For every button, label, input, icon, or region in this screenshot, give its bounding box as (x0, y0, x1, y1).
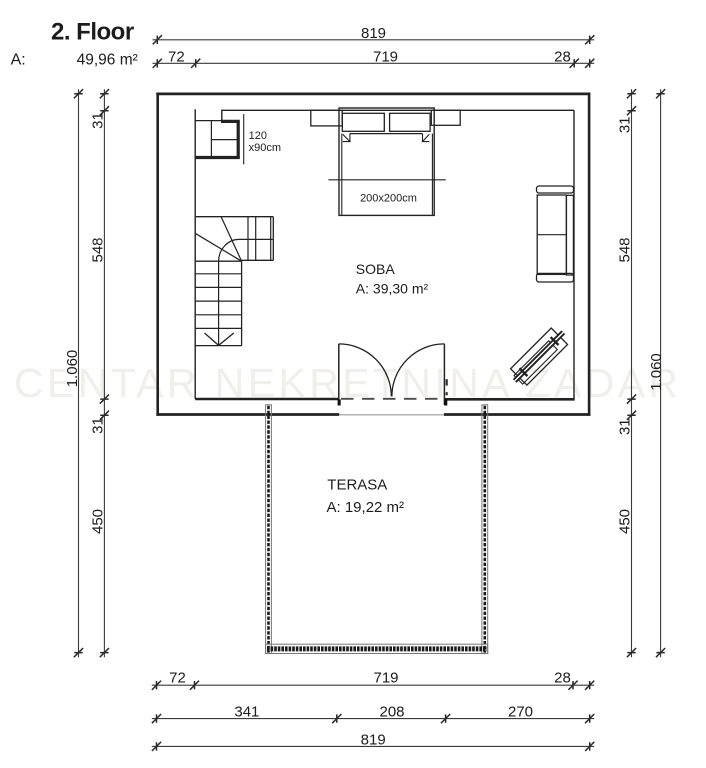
svg-text:200x200cm: 200x200cm (360, 192, 417, 204)
svg-text:120: 120 (249, 130, 267, 142)
svg-text:548: 548 (617, 237, 634, 262)
svg-text:719: 719 (373, 669, 398, 686)
svg-text:548: 548 (90, 237, 107, 262)
svg-text:1.060: 1.060 (648, 353, 665, 391)
svg-text:819: 819 (361, 732, 386, 749)
svg-text:450: 450 (90, 509, 107, 534)
svg-text:341: 341 (234, 703, 259, 720)
svg-text:A:: A: (11, 52, 26, 69)
svg-text:49,96 m²: 49,96 m² (77, 52, 138, 69)
svg-text:719: 719 (373, 49, 398, 66)
svg-text:TERASA: TERASA (327, 476, 387, 493)
svg-text:A: 39,30 m²: A: 39,30 m² (356, 281, 429, 297)
svg-text:31: 31 (90, 417, 107, 434)
svg-text:x90cm: x90cm (249, 142, 281, 154)
svg-text:31: 31 (617, 116, 634, 133)
svg-text:2. Floor: 2. Floor (51, 19, 134, 46)
svg-text:28: 28 (554, 49, 571, 66)
svg-text:1.060: 1.060 (64, 350, 81, 388)
svg-text:31: 31 (90, 112, 107, 129)
svg-text:208: 208 (379, 703, 404, 720)
svg-text:450: 450 (617, 509, 634, 534)
svg-text:72: 72 (168, 49, 185, 66)
svg-text:28: 28 (554, 669, 571, 686)
svg-text:819: 819 (361, 25, 386, 42)
svg-text:A: 19,22 m²: A: 19,22 m² (327, 499, 405, 516)
svg-text:72: 72 (169, 669, 186, 686)
svg-text:SOBA: SOBA (356, 261, 396, 277)
svg-text:270: 270 (508, 703, 533, 720)
svg-text:31: 31 (617, 418, 634, 435)
